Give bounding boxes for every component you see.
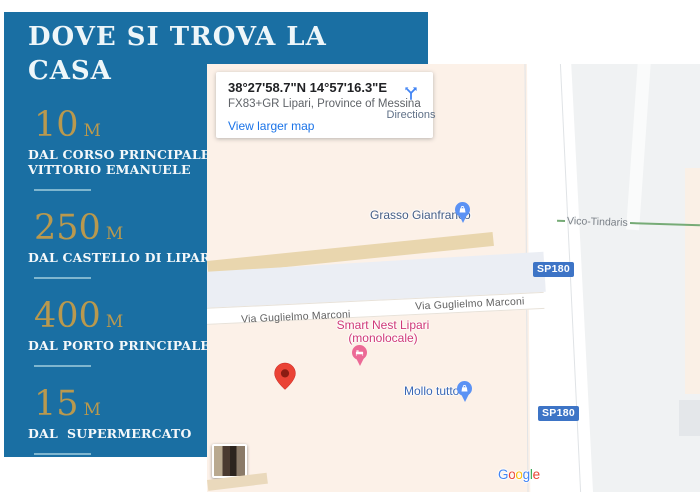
distance-value: 10M [34, 108, 228, 143]
poi-label-smart-nest-lipari[interactable]: Smart Nest Lipari (monolocale) [327, 319, 439, 345]
distance-label: DAL PORTO PRINCIPALE [28, 338, 228, 353]
path-line [630, 222, 700, 226]
shopping-pin-icon[interactable] [457, 381, 472, 396]
route-badge-sp180: SP180 [538, 406, 579, 421]
google-logo[interactable]: Google [498, 467, 540, 482]
divider [34, 365, 91, 367]
distance-item: 15M DAL SUPERMERCATO [28, 387, 228, 455]
directions-icon [402, 84, 420, 102]
map-info-card: 38°27'58.7"N 14°57'16.3"E FX83+GR Lipari… [216, 72, 433, 138]
location-marker-icon[interactable] [273, 362, 297, 390]
distance-item: 400M DAL PORTO PRINCIPALE [28, 299, 228, 367]
property-location-page: DOVE SI TROVA LA CASA 10M DAL CORSO PRIN… [0, 0, 700, 500]
distance-value: 15M [34, 387, 228, 422]
distance-label: DAL CORSO PRINCIPALE VITTORIO EMANUELE [28, 147, 228, 177]
divider [34, 453, 91, 455]
lodging-pin-icon[interactable] [352, 345, 367, 360]
bed-icon [355, 348, 364, 357]
google-map-embed[interactable]: Vico-Tindaris Via Guglielmo Marconi Via … [207, 64, 700, 492]
divider [34, 277, 91, 279]
bag-icon [458, 205, 467, 214]
distance-item: 250M DAL CASTELLO DI LIPARI [28, 211, 228, 279]
street-view-thumbnail[interactable] [212, 444, 247, 478]
divider [34, 189, 91, 191]
distance-value: 400M [34, 299, 228, 334]
directions-label: Directions [384, 109, 438, 121]
distance-item: 10M DAL CORSO PRINCIPALE VITTORIO EMANUE… [28, 108, 228, 191]
distance-label: DAL SUPERMERCATO [28, 426, 228, 441]
distance-value: 250M [34, 211, 228, 246]
street-name-label: Vico-Tindaris [565, 215, 630, 229]
poi-label-mollo-tutto[interactable]: Mollo tutto [404, 384, 459, 398]
street-view-preview-image [214, 446, 245, 476]
path-line [557, 220, 565, 222]
map-building-block [679, 400, 700, 436]
shopping-pin-icon[interactable] [455, 202, 470, 217]
view-larger-map-link[interactable]: View larger map [228, 119, 433, 133]
directions-button[interactable]: Directions [384, 84, 438, 121]
route-badge-sp180: SP180 [533, 262, 574, 277]
page-title-line1: DOVE SI TROVA LA [28, 20, 428, 54]
distance-label: DAL CASTELLO DI LIPARI [28, 250, 228, 265]
map-cream-patch [685, 168, 700, 394]
bag-icon [460, 384, 469, 393]
